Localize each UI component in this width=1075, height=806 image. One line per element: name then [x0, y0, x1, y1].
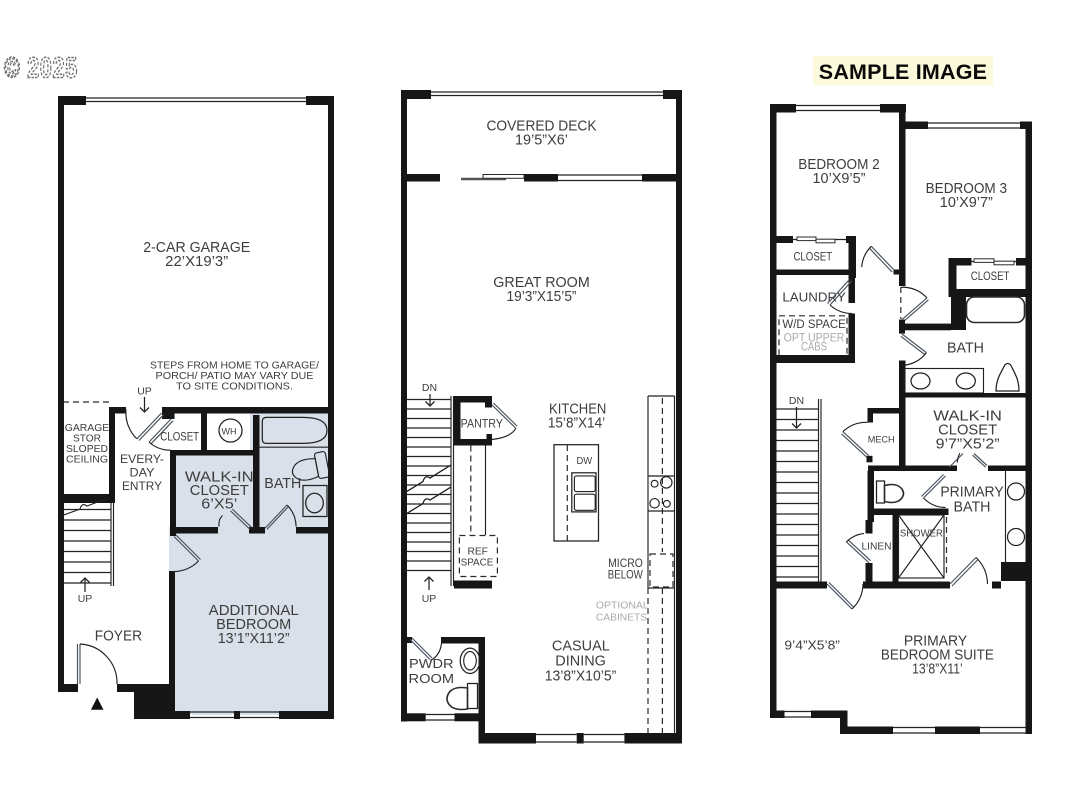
- svg-text:CEILING: CEILING: [66, 454, 108, 466]
- svg-text:13’8”X10’5”: 13’8”X10’5”: [545, 669, 617, 685]
- svg-text:9’7”X5’2”: 9’7”X5’2”: [936, 437, 1000, 453]
- svg-text:PRIMARY: PRIMARY: [940, 485, 1004, 501]
- svg-text:13’1”X11’2”: 13’1”X11’2”: [218, 631, 290, 647]
- svg-text:WH: WH: [222, 427, 237, 438]
- svg-text:6’X5’: 6’X5’: [201, 497, 237, 513]
- svg-text:DN: DN: [789, 395, 804, 407]
- svg-text:MICRO: MICRO: [608, 558, 643, 570]
- svg-text:TO SITE CONDITIONS.: TO SITE CONDITIONS.: [176, 381, 293, 393]
- svg-text:UP: UP: [422, 593, 437, 605]
- svg-text:FOYER: FOYER: [95, 629, 142, 645]
- svg-text:SHOWER: SHOWER: [900, 529, 943, 540]
- svg-text:10’X9’7”: 10’X9’7”: [940, 195, 993, 211]
- svg-text:© 2025: © 2025: [4, 52, 78, 84]
- svg-text:ENTRY: ENTRY: [122, 481, 162, 493]
- svg-text:ROOM: ROOM: [409, 672, 455, 686]
- svg-text:EVERY-: EVERY-: [120, 454, 164, 466]
- svg-text:LINEN: LINEN: [862, 541, 892, 552]
- svg-text:CABINETS: CABINETS: [596, 611, 647, 623]
- svg-text:W/D SPACE: W/D SPACE: [782, 319, 846, 331]
- svg-text:OPTIONAL: OPTIONAL: [596, 600, 649, 612]
- svg-text:19’3”X15’5”: 19’3”X15’5”: [507, 289, 577, 305]
- svg-text:22’X19’3”: 22’X19’3”: [165, 254, 228, 270]
- svg-text:BATH: BATH: [954, 500, 991, 516]
- svg-text:10’X9’5”: 10’X9’5”: [813, 171, 866, 187]
- svg-text:SAMPLE IMAGE: SAMPLE IMAGE: [819, 60, 987, 84]
- svg-text:13’8”X11’: 13’8”X11’: [912, 662, 963, 678]
- svg-text:DAY: DAY: [130, 468, 155, 480]
- svg-text:BATH: BATH: [264, 476, 301, 492]
- svg-text:PWDR: PWDR: [409, 657, 454, 671]
- svg-text:9’4”X5’8”: 9’4”X5’8”: [784, 639, 840, 653]
- svg-text:DW: DW: [577, 455, 593, 467]
- svg-text:UP: UP: [78, 593, 93, 605]
- svg-text:CLOSET: CLOSET: [160, 431, 199, 443]
- svg-text:DINING: DINING: [555, 654, 606, 670]
- svg-text:SPACE: SPACE: [461, 557, 494, 569]
- svg-text:CLOSET: CLOSET: [793, 252, 832, 264]
- svg-text:BELOW: BELOW: [608, 570, 643, 582]
- svg-text:CASUAL: CASUAL: [552, 639, 610, 655]
- svg-text:CABS: CABS: [801, 342, 827, 354]
- svg-text:UP: UP: [137, 386, 152, 398]
- svg-text:CLOSET: CLOSET: [971, 271, 1010, 283]
- svg-text:19’5”X6’: 19’5”X6’: [515, 133, 568, 149]
- svg-text:PANTRY: PANTRY: [461, 419, 504, 431]
- svg-text:15’8”X14’: 15’8”X14’: [548, 416, 605, 432]
- svg-text:DN: DN: [422, 382, 437, 394]
- svg-text:MECH: MECH: [868, 435, 895, 446]
- svg-text:BATH: BATH: [947, 341, 984, 357]
